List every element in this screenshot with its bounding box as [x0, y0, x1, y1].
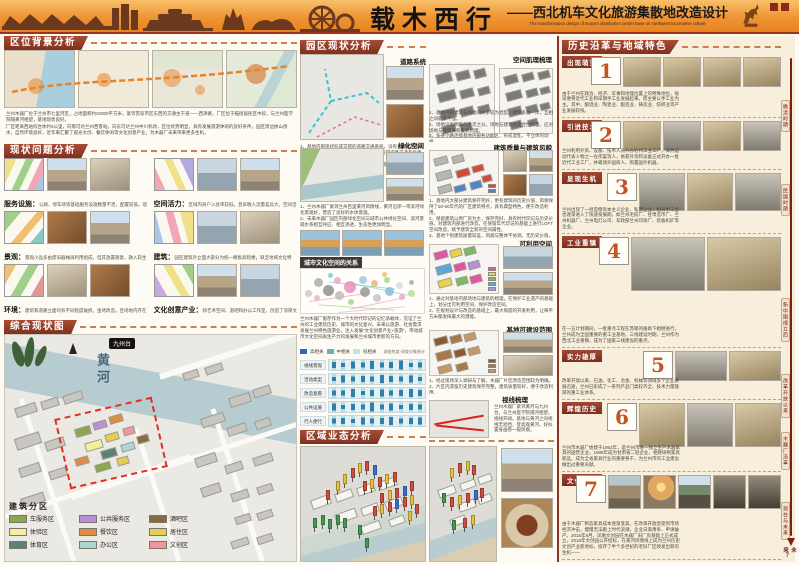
- era-text: 兰州利用外资、设备、技术人员兴办近代工业工厂，洋务运动代表人物之一左宗棠等人，依…: [562, 148, 682, 166]
- flag-head: [365, 461, 369, 471]
- road-photo: [386, 104, 424, 138]
- matrix-bar: [380, 416, 384, 426]
- problem-photo: [90, 211, 130, 244]
- matrix-bar: [418, 388, 422, 398]
- map-building: [505, 89, 523, 102]
- map-building: [469, 180, 483, 191]
- matrix-bar-fill: [380, 375, 384, 383]
- matrix-row: 改造意愿: [300, 386, 426, 400]
- matrix-bar: [341, 374, 345, 384]
- middle-column-2: 空间肌理梳理 1、基地内部建筑与场地的关系较为混乱，建筑多为一体，互相之间联系不…: [429, 36, 554, 562]
- matrix-bar-fill: [361, 405, 365, 410]
- culture-bubble: [344, 281, 356, 293]
- sight-line: [434, 415, 484, 426]
- matrix-bar: [380, 402, 384, 412]
- mini-legend-chip: [488, 189, 496, 193]
- culture-legend-label: 高相关: [310, 349, 324, 355]
- matrix-bar: [370, 374, 374, 384]
- legend-item: 办公区: [79, 540, 145, 549]
- problem-item: 空间活力：区域内商户入驻率较低，且早晚人流量差异大，空间活力不足。: [154, 158, 298, 211]
- matrix-bar: [380, 360, 384, 370]
- business-flag: [450, 497, 454, 511]
- map-building: [435, 349, 453, 362]
- usable-space-map: [429, 244, 499, 294]
- culture-legend: 高相关中相关低相关调查热度·调查对象统计: [300, 347, 425, 356]
- mini-legend: [488, 184, 496, 193]
- timeline-label: 晚清时期: [781, 100, 790, 132]
- era-number: 5: [643, 351, 673, 379]
- matrix-bar-fill: [399, 361, 403, 370]
- legend-label: 餐饮区: [100, 527, 118, 536]
- sight-line: [436, 424, 484, 431]
- noodle-photo: [501, 498, 553, 548]
- map-building: [455, 69, 471, 81]
- era-label: 实力雄厚: [562, 350, 602, 362]
- culture-bubble: [382, 272, 387, 277]
- business-flag: [365, 538, 369, 552]
- problem-label: 景观：: [4, 254, 25, 261]
- timeline-line: [790, 58, 792, 536]
- business-flag: [336, 515, 340, 529]
- flag-stem: [453, 530, 454, 534]
- era-photo: [623, 121, 661, 151]
- map-building: [453, 262, 467, 273]
- culture-legend-label: 中相关: [337, 349, 351, 355]
- map-building: [463, 246, 477, 257]
- location-map-china: [4, 50, 75, 108]
- business-flag: [403, 497, 407, 511]
- matrix-bar-fill: [361, 376, 365, 382]
- flag-stem: [411, 505, 412, 509]
- business-flag: [410, 481, 414, 495]
- matrix-bar: [389, 388, 393, 398]
- matrix-bar-fill: [370, 390, 374, 396]
- timeline-label: 木器厂沿革: [781, 432, 790, 470]
- era-block: 工业重镇4在一五计划期间，一批重点工程在苏联的援助下相继进行，兰州成为全国重要的…: [562, 234, 781, 348]
- matrix-row-label: 改造意愿: [300, 388, 326, 398]
- section-title-park-status: 园区现状分析: [300, 40, 384, 54]
- problem-photo: [197, 158, 237, 191]
- sightline-label: 视线梳理: [502, 394, 528, 404]
- legend-item: 公共服务区: [79, 514, 145, 523]
- legend-swatch: [79, 541, 97, 549]
- culture-legend-label: 低相关: [363, 349, 377, 355]
- problem-caption: 空间活力：区域内商户入驻率较低，且早晚人流量差异大，空间活力不足。: [154, 193, 298, 211]
- flag-stem: [359, 473, 360, 477]
- business-flag: [378, 477, 382, 491]
- quality-map: [429, 150, 499, 196]
- matrix-row-label: 视线景观: [300, 360, 326, 370]
- river-photo: [384, 230, 424, 256]
- map-building: [463, 332, 477, 343]
- problem-text: 园区建筑外立面大部分为统一模板高程楼，缺乏地域文化特色。各建筑为单体结构，缺乏空…: [154, 255, 292, 264]
- matrix-bar: [409, 402, 413, 412]
- culture-bubble: [385, 287, 394, 296]
- quality-photo: [503, 150, 527, 172]
- culture-bubble: [348, 299, 354, 305]
- flag-stem: [374, 516, 375, 520]
- era-label: 工业重镇: [562, 236, 602, 248]
- map-building: [467, 260, 481, 271]
- flag-stem: [386, 484, 387, 488]
- matrix-bar: [409, 416, 413, 426]
- matrix-bar: [341, 416, 345, 426]
- problem-photo: [240, 158, 280, 191]
- legend-item: 居住区: [149, 527, 215, 536]
- culture-bubble: [399, 294, 405, 300]
- matrix-bar: [351, 416, 355, 426]
- map-building: [433, 155, 449, 166]
- business-flag: [471, 515, 475, 529]
- flag-head: [385, 474, 389, 484]
- business-flag: [450, 468, 454, 482]
- era-photo: [623, 57, 661, 87]
- yellow-river-label: 黄河: [93, 353, 112, 387]
- north-compass: [69, 343, 77, 354]
- dashed-divider: [387, 46, 426, 48]
- road-system-map: [300, 54, 384, 140]
- matrix-bar: [418, 402, 422, 412]
- flag-stem: [371, 489, 372, 493]
- problem-thumbs: [4, 158, 148, 191]
- era-text: 兰州出现了一批官僚资本主义企业、私营企业，相对手工业也逐渐进入了快速发展期，如兰…: [562, 207, 682, 230]
- flag-head: [415, 504, 419, 514]
- mini-legend-chip: [488, 359, 496, 363]
- flag-stem: [327, 500, 328, 504]
- left-column: 区位背景分析 兰州木器厂位于兰州市七里河区，占地面积约20000平方米，紧邻贯穿…: [4, 36, 297, 562]
- map-building: [521, 72, 535, 83]
- matrix-bar: [389, 416, 393, 426]
- flag-stem: [459, 505, 460, 509]
- business-flag: [408, 511, 412, 525]
- flag-head: [472, 465, 476, 475]
- flag-head: [452, 520, 456, 530]
- survey-matrix: 视线景观活动类型改造意愿公共设施行人便行: [300, 358, 426, 428]
- business-flag: [313, 518, 317, 532]
- flag-head: [313, 518, 317, 528]
- flag-head: [358, 463, 362, 473]
- map-building: [437, 484, 457, 499]
- era-photo: [639, 173, 685, 211]
- map-building: [455, 362, 469, 373]
- problem-map-thumb: [154, 158, 194, 191]
- matrix-bar-fill: [380, 390, 384, 397]
- era-photo: [687, 403, 733, 447]
- texture-text: 1、基地内部建筑与场地的关系较为混乱，建筑多为一体，互相之间联系不强。 2、场地…: [429, 110, 554, 142]
- map-building: [256, 483, 274, 496]
- map-building: [437, 363, 453, 374]
- section-title-business: 区域业态分析: [300, 430, 384, 444]
- culture-bubble: [359, 276, 367, 284]
- matrix-bar-fill: [418, 363, 422, 368]
- matrix-bar-fill: [370, 361, 374, 369]
- legend-label: 办公区: [100, 540, 118, 549]
- poster-title: 载木西行: [370, 0, 498, 36]
- flag-stem: [475, 500, 476, 504]
- flag-stem: [481, 498, 482, 502]
- flag-stem: [337, 491, 338, 495]
- flag-head: [466, 493, 470, 503]
- map-building: [433, 335, 449, 346]
- buildable-map: [429, 330, 499, 376]
- matrix-bar-fill: [409, 389, 413, 397]
- matrix-bar-fill: [370, 403, 374, 412]
- flag-stem: [473, 475, 474, 479]
- map-building: [503, 73, 519, 85]
- map-building: [467, 346, 481, 357]
- era-text: 改革开放以来，石油、化工、冶金、机械等领域多个企业发展迅速，兰州已形成了一系列产…: [562, 378, 682, 396]
- culture-legend-note: 调查热度·调查对象统计: [384, 349, 425, 355]
- matrix-bar-fill: [361, 391, 365, 395]
- culture-bubble: [328, 273, 333, 278]
- legend-swatch: [9, 515, 27, 523]
- matrix-bar: [389, 360, 393, 370]
- flag-stem: [467, 503, 468, 507]
- flag-stem: [322, 525, 323, 529]
- matrix-bar-fill: [351, 362, 355, 369]
- business-flag: [463, 518, 467, 532]
- era-number: 7: [576, 475, 606, 503]
- problem-thumbs: [4, 264, 148, 297]
- green-photo: [386, 178, 424, 201]
- matrix-bar-fill: [380, 363, 384, 368]
- matrix-bar-fill: [332, 404, 336, 411]
- matrix-row-label: 活动类型: [300, 374, 326, 384]
- legend-swatch: [149, 541, 167, 549]
- location-paragraph-1: 兰州木器厂位于兰州市七里河区，占地面积约20000平方米，紧邻贯穿市区东西的交通…: [6, 111, 295, 123]
- matrix-bar-fill: [399, 419, 403, 424]
- map-building: [256, 509, 274, 522]
- matrix-bar-fill: [418, 418, 422, 425]
- flag-stem: [404, 507, 405, 511]
- flag-stem: [381, 514, 382, 518]
- problem-photo: [90, 264, 130, 297]
- legend-label: 体育区: [30, 540, 48, 549]
- flag-head: [395, 499, 399, 509]
- bronze-horse-icon: [740, 2, 762, 28]
- flag-head: [458, 463, 462, 473]
- era-photos: 1: [591, 57, 781, 87]
- flag-head: [343, 474, 347, 484]
- era-photo: [687, 173, 733, 211]
- map-building: [437, 183, 453, 194]
- era-photos: 6: [607, 403, 781, 447]
- matrix-row-label: 公共设施: [300, 402, 326, 412]
- problem-text: 建筑和道路立面均有不同程度破损，亟待改造。且场地内存在物品乱堆砌现象，有安全隐患…: [4, 308, 147, 317]
- culture-bubble: [323, 285, 334, 296]
- buildable-text: 1、经过现场深入调研与了解，木器厂片区改造范围较为明确。 2、片区内遗留历史建筑…: [429, 378, 554, 394]
- problem-caption: 建筑：园区建筑外立面大部分为统一模板高程楼，缺乏地域文化特色。各建筑为单体结构，…: [154, 246, 298, 264]
- era-text: 由于兰州在政治、经济、军事和地理位置上的特殊地位，很早便将近代工业和早期手工业发…: [562, 91, 682, 114]
- matrix-bar: [361, 360, 365, 370]
- green-text: 1、兰州木器厂紧邻兰州百里黄河风情线，黄河沿岸一带滨河绿化景观好，营造了良好的水…: [300, 204, 425, 228]
- timeline-label: 现在与未来: [781, 502, 790, 540]
- flag-head: [380, 493, 384, 503]
- matrix-bar: [361, 388, 365, 398]
- flag-head: [403, 486, 407, 496]
- problem-photo: [197, 264, 237, 297]
- flag-stem: [394, 482, 395, 486]
- timeline-label: 新中国成立后: [781, 298, 790, 342]
- matrix-bar: [418, 360, 422, 370]
- problem-map-thumb: [4, 211, 44, 244]
- flag-head: [450, 468, 454, 478]
- business-flag: [363, 481, 367, 495]
- matrix-bar-fill: [332, 362, 336, 368]
- matrix-bar-fill: [341, 363, 345, 367]
- matrix-bar-fill: [332, 377, 336, 381]
- problem-map-thumb: [154, 264, 194, 297]
- map-building: [449, 248, 463, 259]
- matrix-band: [328, 415, 426, 427]
- flag-head: [471, 515, 475, 525]
- matrix-row-label: 行人便行: [300, 416, 326, 426]
- legend-swatch: [79, 515, 97, 523]
- matrix-bar-fill: [351, 419, 355, 423]
- culture-relation-label: 城市文化空间的关系: [300, 257, 362, 268]
- matrix-bar-fill: [361, 418, 365, 425]
- map-building: [469, 274, 483, 285]
- river-band: [300, 171, 384, 202]
- era-photo: [703, 121, 741, 151]
- era-photo: [735, 403, 781, 447]
- green-photo: [386, 152, 424, 175]
- matrix-bar: [399, 374, 403, 384]
- era-block: 文化空间7由于木器厂制造家具成本逐渐变高，在改革开放后受到市场经济冲击，慢慢无法…: [562, 472, 781, 560]
- era-photo: [743, 121, 781, 151]
- era-photo: [663, 57, 701, 87]
- matrix-bar: [409, 388, 413, 398]
- matrix-bar: [418, 374, 422, 384]
- era-photo: [707, 237, 781, 291]
- problem-label: 服务设施：: [4, 201, 39, 208]
- map-building: [18, 462, 42, 478]
- business-flag: [480, 488, 484, 502]
- business-flag: [351, 468, 355, 482]
- map-building: [453, 348, 467, 359]
- matrix-bar: [332, 374, 336, 384]
- matrix-bar-fill: [361, 363, 365, 368]
- business-flag: [393, 472, 397, 486]
- problem-photo: [240, 211, 280, 244]
- green-space-label: 绿化空间: [398, 140, 424, 150]
- matrix-bar: [399, 360, 403, 370]
- era-photo: [729, 351, 781, 381]
- era-number: 1: [591, 57, 621, 85]
- buildable-photo: [503, 355, 553, 376]
- business-flag: [458, 495, 462, 509]
- flag-stem: [344, 484, 345, 488]
- problem-caption: 服务设施：公厕、停车场等基础服务设施数量不足，配置较低。现有自行车辆服务基地基本…: [4, 193, 148, 211]
- legend-label: 文创区: [170, 540, 188, 549]
- flag-head: [442, 493, 446, 503]
- business-flag: [370, 479, 374, 493]
- legend-swatch: [9, 541, 27, 549]
- section-overall-map: 综合现状图: [4, 320, 297, 334]
- flag-head: [388, 502, 392, 512]
- flag-head: [410, 481, 414, 491]
- flag-head: [408, 511, 412, 521]
- culture-bubble: [314, 295, 320, 301]
- flag-stem: [366, 471, 367, 475]
- section-title-history: 历史沿革与地域特色: [562, 40, 679, 54]
- map-building: [159, 334, 297, 380]
- quality-photo: [503, 174, 527, 196]
- era-photo: [678, 475, 711, 509]
- matrix-bar: [332, 360, 336, 370]
- matrix-bar: [370, 388, 374, 398]
- matrix-bar: [332, 388, 336, 398]
- matrix-bar: [409, 360, 413, 370]
- matrix-bar-fill: [418, 377, 422, 381]
- matrix-band: [328, 387, 426, 399]
- mini-legend-chip: [488, 267, 496, 271]
- matrix-bar-fill: [351, 377, 355, 382]
- flag-stem: [366, 548, 367, 552]
- legend-grid: 车服务区公共服务区酒吧区体验区餐饮区居住区体育区办公区文创区: [9, 514, 215, 549]
- flag-head: [388, 490, 392, 500]
- flag-head: [365, 538, 369, 548]
- problem-map-thumb: [4, 264, 44, 297]
- flag-head: [326, 490, 330, 500]
- era-photos: 3: [607, 173, 781, 211]
- culture-bubble: [305, 290, 312, 297]
- matrix-band: [328, 373, 426, 385]
- problem-thumbs: [154, 264, 298, 297]
- problem-label: 文化创意产业：: [154, 307, 203, 314]
- mini-legend: [488, 359, 496, 373]
- legend-label: 酒吧区: [170, 514, 188, 523]
- location-paragraph-2: 厂区距离西站综合体约5公里，向南可达兰州西客站，向东可达兰州中川机场，区位优势明…: [6, 124, 295, 142]
- flag-stem: [416, 514, 417, 518]
- era-block: 出现萌芽1由于兰州在政治、经济、军事和地理位置上的特殊地位，很早便将近代工业和早…: [562, 54, 781, 118]
- road-system-label: 道路系统: [400, 56, 426, 66]
- history-column: 历史沿革与地域特色 出现萌芽1由于兰州在政治、经济、军事和地理位置上的特殊地位，…: [557, 36, 795, 562]
- business-flag: [474, 490, 478, 504]
- problem-thumbs: [4, 211, 148, 244]
- flag-head: [480, 488, 484, 498]
- problem-label: 环境：: [4, 307, 25, 314]
- map-building: [200, 482, 222, 498]
- poster-subtitle: ——西北机车文化旅游集散地改造设计 The transformation des…: [505, 2, 730, 26]
- era-photo: [639, 403, 685, 447]
- matrix-bar: [399, 402, 403, 412]
- flag-head: [450, 497, 454, 507]
- flag-head: [328, 519, 332, 529]
- matrix-bar-fill: [409, 376, 413, 383]
- flag-head: [378, 477, 382, 487]
- bottom-axon-map: [429, 446, 497, 562]
- decor-square: [781, 3, 789, 11]
- timeline-label: 民国时期: [781, 184, 790, 216]
- map-building: [471, 164, 484, 174]
- flag-head: [336, 481, 340, 491]
- problem-item: 文化创意产业：除艺术空间、酒吧和办公工作室，创造了浓厚文化氛围，但受到狭窄空间限…: [154, 264, 298, 317]
- river-photo: [342, 230, 382, 256]
- section-location: 区位背景分析: [4, 36, 297, 50]
- matrix-bar: [341, 388, 345, 398]
- dashed-divider: [429, 440, 554, 442]
- era-photos: 5: [643, 351, 781, 381]
- problems-grid: 服务设施：公厕、停车场等基础服务设施数量不足，配置较低。现有自行车辆服务基地基本…: [4, 158, 297, 318]
- era-photos: 7: [576, 475, 781, 509]
- matrix-bar-fill: [389, 404, 393, 411]
- city-skyline-silhouette: [0, 2, 365, 32]
- map-building: [459, 87, 475, 99]
- business-flag: [415, 504, 419, 518]
- map-building: [525, 88, 539, 99]
- mini-legend-chip: [488, 184, 496, 188]
